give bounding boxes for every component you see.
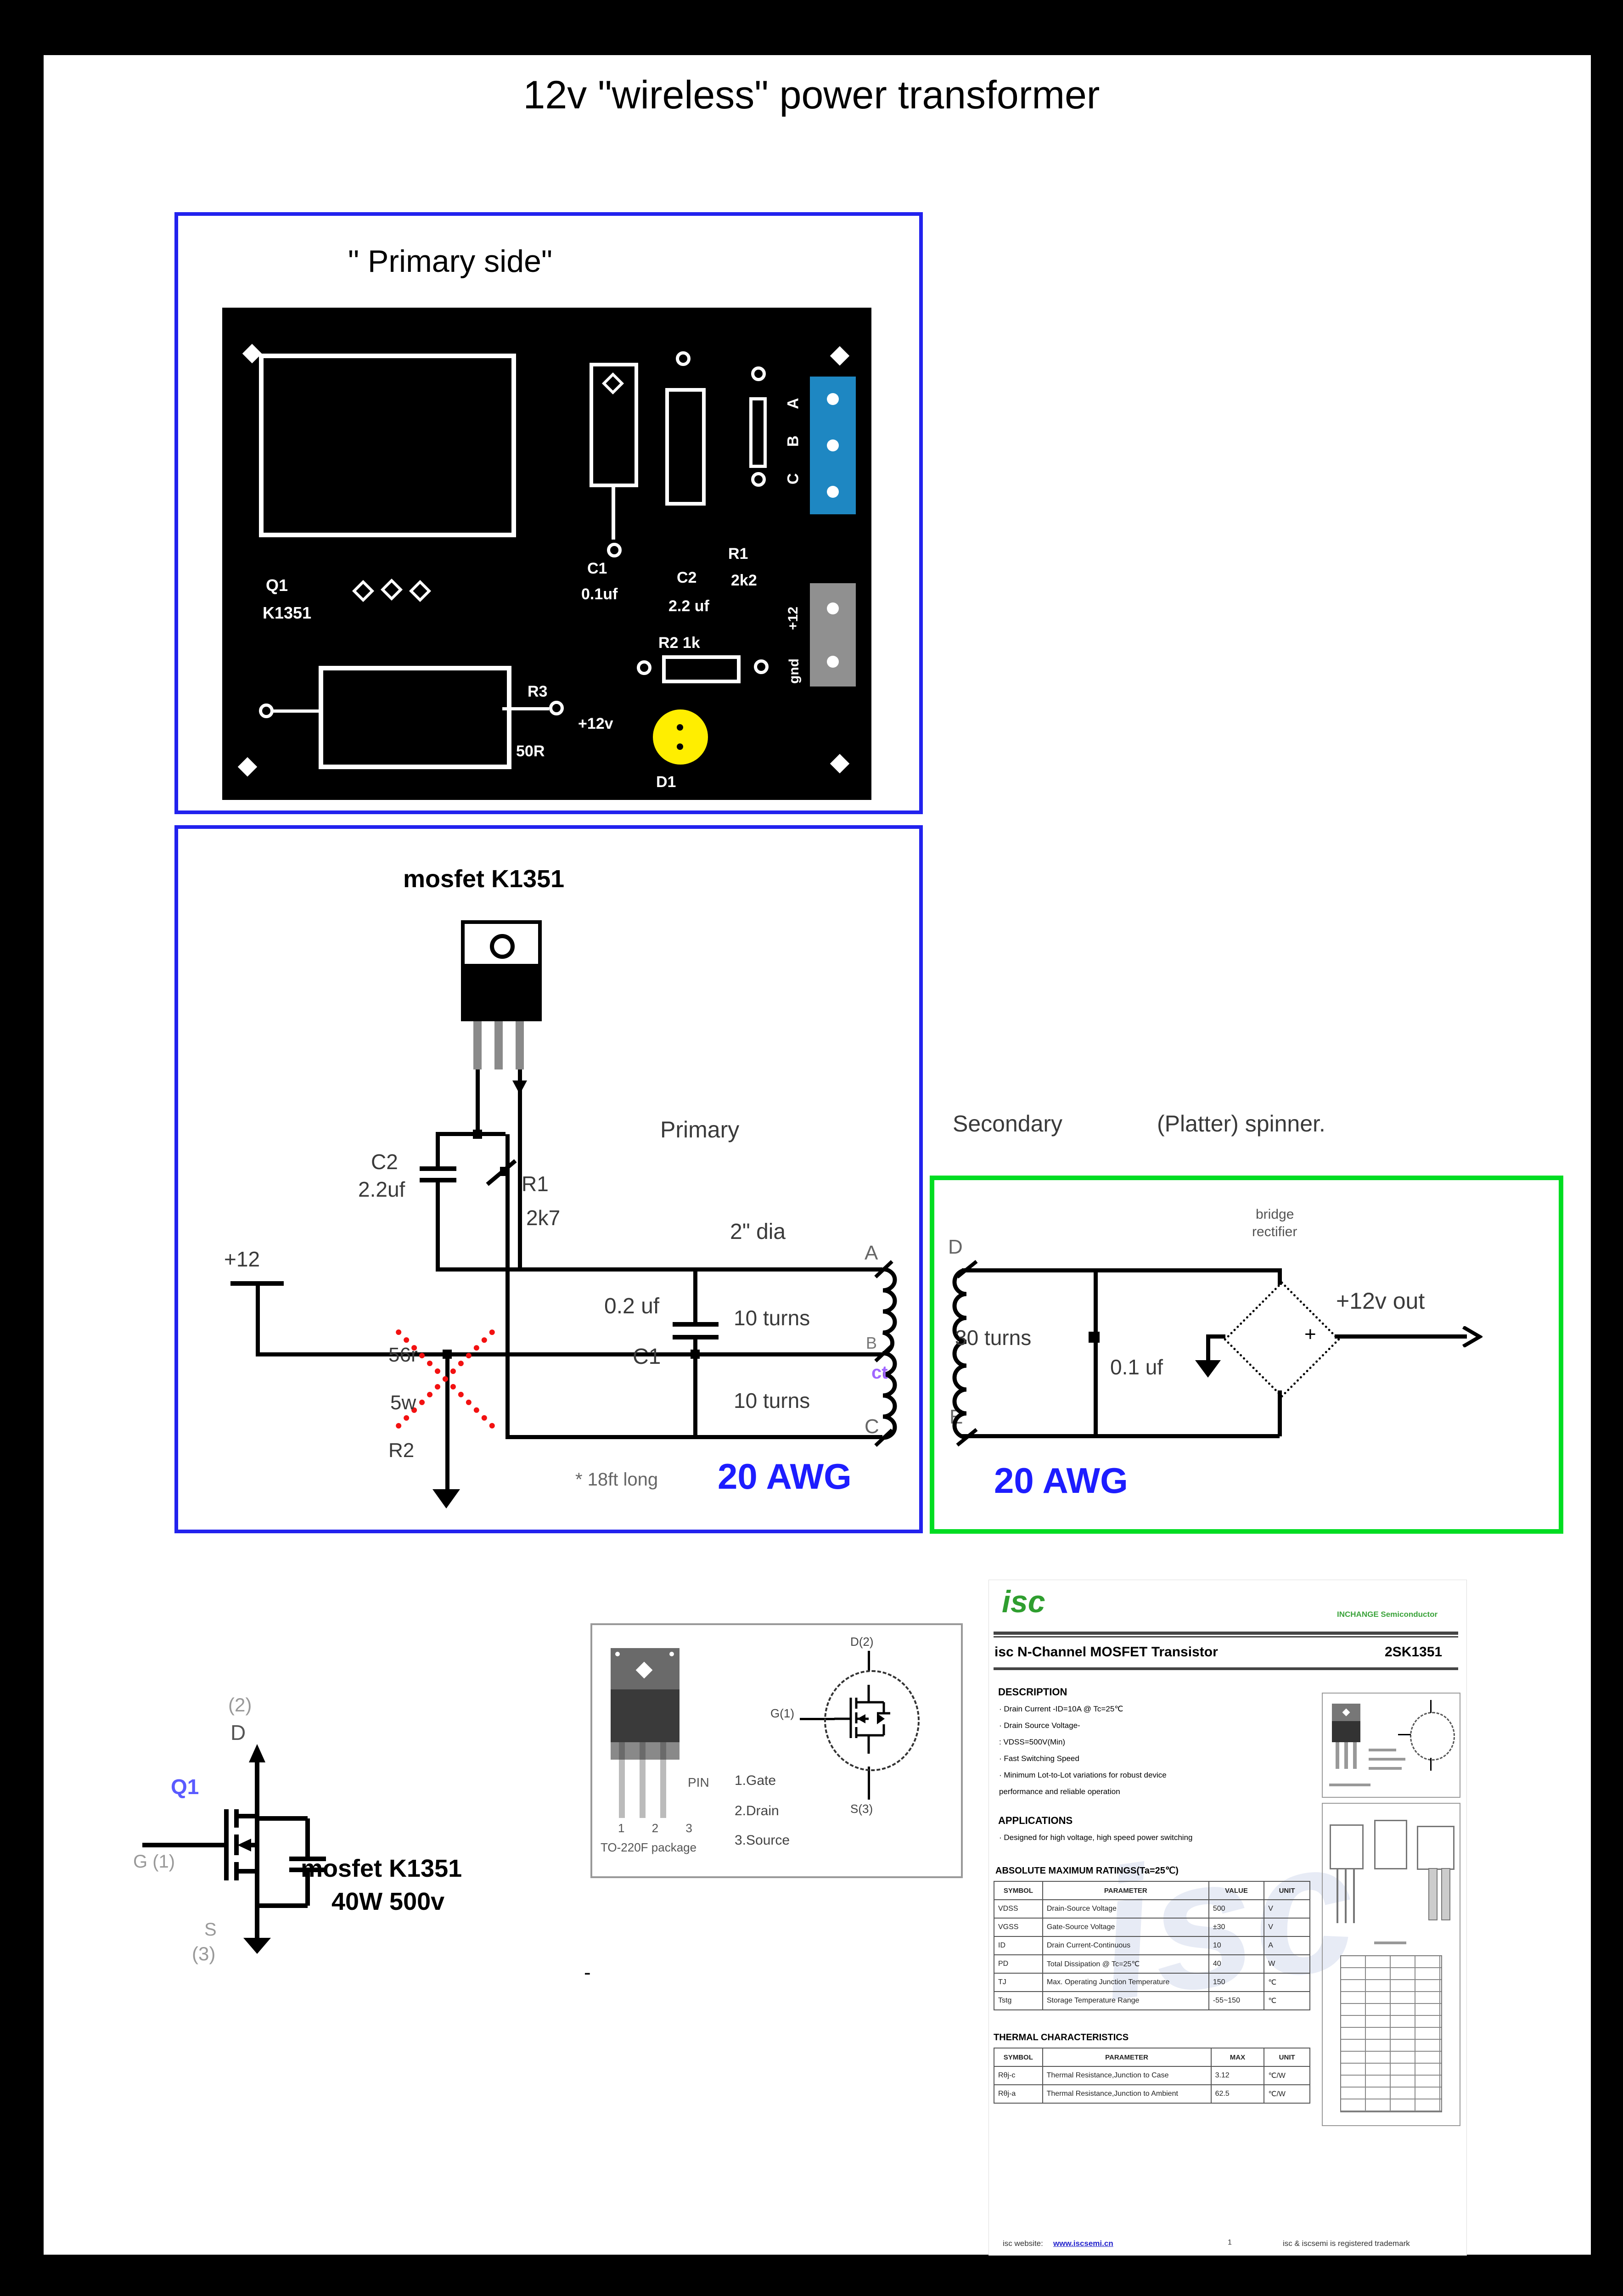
table-row: IDDrain Current-Continuous10A (994, 1936, 1310, 1955)
dimension-table (1340, 1955, 1442, 2112)
table-row: TJMax. Operating Junction Temperature150… (994, 1973, 1310, 1992)
to220-leg (473, 1021, 482, 1069)
wire-gauge-label: 20 AWG (718, 1457, 852, 1497)
pcb-led-icon (653, 709, 708, 765)
c1-value: 0.2 uf (604, 1294, 659, 1319)
secondary-section-label: Secondary (953, 1111, 1062, 1137)
pinout-sym-s: S(3) (850, 1802, 873, 1816)
rule (994, 1632, 1458, 1635)
table-row: VDSSDrain-Source Voltage500V (994, 1900, 1310, 1918)
cell: PD (994, 1955, 1043, 1973)
outline-leg (1428, 1868, 1438, 1920)
thermal-title: THERMAL CHARACTERISTICS (994, 2032, 1129, 2043)
wire (476, 1069, 480, 1134)
coil-diameter-label: 2" dia (730, 1220, 786, 1244)
cell: 10 (1209, 1936, 1264, 1955)
outline-view (1374, 1820, 1407, 1869)
current-arrow-icon (512, 1080, 527, 1094)
pcb-pad-diamond-icon (352, 580, 374, 602)
pcb-pad-icon (637, 660, 651, 675)
wire (962, 1268, 1280, 1272)
secondary-turns-label: 30 turns (955, 1326, 1031, 1350)
mini-lead (1430, 1700, 1432, 1713)
cell: Thermal Resistance,Junction to Case (1043, 2066, 1211, 2085)
mini-lead (1398, 1734, 1411, 1735)
mini-package-body (1332, 1721, 1360, 1742)
primary-side-caption: " Primary side" (348, 244, 552, 279)
pcb-scr-outline (319, 666, 511, 769)
ratings-title: ABSOLUTE MAXIMUM RATINGS(Ta=25℃) (995, 1866, 1179, 1876)
pcb-pad-diamond-icon (409, 580, 431, 602)
cell: ±30 (1209, 1918, 1264, 1936)
cell: 62.5 (1211, 2085, 1264, 2103)
description-item: · Fast Switching Speed (999, 1755, 1079, 1763)
package-figure-box (1322, 1693, 1460, 1798)
platter-spinner-label: (Platter) spinner. (1157, 1111, 1325, 1137)
cell: Storage Temperature Range (1043, 1992, 1209, 2010)
cell: Gate-Source Voltage (1043, 1918, 1209, 1936)
cell: VGSS (994, 1918, 1043, 1936)
pcb-c2-ref: C2 (677, 569, 696, 586)
junction-dot (473, 1130, 482, 1139)
cell: W (1264, 1955, 1310, 1973)
page-title: 12v "wireless" power transformer (0, 73, 1623, 117)
rule (994, 1667, 1458, 1670)
col-header: UNIT (1264, 2048, 1310, 2066)
cell: 150 (1209, 1973, 1264, 1992)
col-header: MAX (1211, 2048, 1264, 2066)
outline-leg (1345, 1868, 1347, 1923)
table-header-row: SYMBOL PARAMETER MAX UNIT (994, 2048, 1310, 2066)
pinout-sym-d: D(2) (850, 1635, 874, 1649)
cap-plate (673, 1335, 719, 1339)
pcb-trace (612, 487, 615, 540)
wire (505, 1134, 510, 1439)
secondary-gauge-label: 20 AWG (994, 1461, 1128, 1501)
ratings-table: SYMBOL PARAMETER VALUE UNIT VDSSDrain-So… (994, 1881, 1310, 2010)
cell: ℃/W (1264, 2085, 1310, 2103)
cap-plate (420, 1166, 456, 1171)
description-item: · Minimum Lot-to-Lot variations for robu… (999, 1771, 1167, 1780)
outline-view (1330, 1824, 1364, 1869)
col-header: SYMBOL (994, 1881, 1043, 1900)
col-header: UNIT (1264, 1881, 1310, 1900)
pinout-package-tab (611, 1648, 680, 1689)
mini-symbol-circle-icon (1410, 1712, 1455, 1761)
outline-leg (1353, 1868, 1355, 1923)
pinout-package-caption: TO-220F package (601, 1841, 696, 1854)
pinout-pin1: 1.Gate (735, 1773, 776, 1788)
pcb-c1-ref: C1 (587, 560, 607, 577)
pcb-r3-ref: R3 (528, 683, 547, 700)
bridge-plus-sign: + (1304, 1323, 1316, 1345)
pcb-pad-icon (549, 701, 564, 715)
pcb-q1-ref: Q1 (266, 576, 288, 595)
pcb-hole-icon (238, 757, 257, 777)
to220-leg (516, 1021, 524, 1069)
datasheet-part-number: 2SK1351 (1385, 1644, 1442, 1660)
mini-hole-icon (1342, 1709, 1350, 1716)
secondary-cap-label: 0.1 uf (1110, 1356, 1163, 1379)
pinout-leg-shade (611, 1742, 680, 1760)
connector-pin (827, 439, 839, 451)
mini-leg (1353, 1742, 1357, 1769)
primary-side-box: " Primary side" Q1 K1351 C1 0.1uf C2 2.2… (174, 212, 923, 814)
to220-leg (494, 1021, 503, 1069)
secondary-coil-icon (939, 1265, 980, 1444)
table-row: PDTotal Dissipation @ Tc=25℃40W (994, 1955, 1310, 1973)
pcb-conn-label-a: A (785, 398, 802, 409)
col-header: PARAMETER (1043, 1881, 1209, 1900)
ground-icon (432, 1489, 460, 1508)
bridge-label-line1: bridge (1256, 1207, 1294, 1222)
mini-leg (1336, 1742, 1339, 1769)
pcb-q1-part: K1351 (263, 604, 311, 622)
pcb-led-pad (677, 743, 683, 750)
footer-page-number: 1 (1228, 2239, 1232, 2247)
scanned-page: { "page": { "title": "12v \"wireless\" p… (0, 0, 1623, 2296)
outline-view (1417, 1826, 1455, 1870)
wire (436, 1182, 440, 1271)
pcb-resistor-outline (662, 655, 741, 683)
description-item: performance and reliable operation (999, 1788, 1120, 1796)
pcb-c1-value: 0.1uf (581, 586, 618, 603)
pcb-r2-label: R2 1k (658, 635, 700, 652)
junction-dot (1089, 1332, 1100, 1343)
table-header-row: SYMBOL PARAMETER VALUE UNIT (994, 1881, 1310, 1900)
pinout-pin3: 3.Source (735, 1833, 790, 1848)
pinout-sym-g: G(1) (770, 1707, 794, 1720)
footer-right: isc & iscsemi is registered trademark (1283, 2240, 1410, 2248)
cap-plate (420, 1178, 456, 1182)
connector-pin (827, 486, 839, 498)
cell: Drain-Source Voltage (1043, 1900, 1209, 1918)
pcb-trace (502, 707, 549, 710)
symbol-mosfet-glyph (834, 1685, 894, 1754)
pcb-conn-label-12v: +12 (786, 607, 801, 630)
cell: V (1264, 1900, 1310, 1918)
wire-rail-a (436, 1267, 882, 1272)
cell: ℃/W (1264, 2066, 1310, 2085)
connector-pin (827, 393, 839, 405)
isc-logo: isc (1002, 1585, 1045, 1619)
cell: Drain Current-Continuous (1043, 1936, 1209, 1955)
mini-package-tab (1332, 1704, 1360, 1721)
pcb-pad-icon (751, 366, 766, 381)
wire (256, 1281, 260, 1355)
ground-icon (1195, 1360, 1221, 1378)
pcb-conn-label-c: C (785, 473, 802, 484)
schematic-title: mosfet K1351 (403, 866, 564, 893)
mini-leg (1344, 1742, 1348, 1769)
pcb-pad-diamond-icon (381, 579, 403, 601)
pcb-supply-label: +12v (578, 715, 613, 732)
pinout-box: 1 2 3 TO-220F package PIN 1.Gate 2.Drain… (590, 1623, 963, 1878)
blur-text (1374, 1941, 1406, 1944)
applications-item: · Designed for high voltage, high speed … (999, 1834, 1192, 1842)
wire-rail-b (256, 1352, 882, 1356)
pcb-trace (273, 709, 319, 713)
cell: -55~150 (1209, 1992, 1264, 2010)
cell: ℃ (1264, 1973, 1310, 1992)
r2-value: 56r (388, 1344, 418, 1366)
pcb-resistor-outline (749, 397, 767, 468)
tab-hole-icon (636, 1662, 653, 1679)
cell: ℃ (1264, 1992, 1310, 2010)
stray-dash: - (584, 1962, 591, 1984)
cell: Total Dissipation @ Tc=25℃ (1043, 1955, 1209, 1973)
primary-section-label: Primary (660, 1117, 739, 1142)
pcb-transformer-outline (259, 354, 516, 537)
cell: 500 (1209, 1900, 1264, 1918)
datasheet-page: isc INCHANGE Semiconductor isc N-Channel… (988, 1580, 1467, 2256)
primary-schematic-box: mosfet K1351 +12 C2 2.2uf R (174, 825, 923, 1533)
supply-label: +12 (224, 1248, 260, 1271)
blur-text (1369, 1767, 1402, 1770)
isc-brand: INCHANGE Semiconductor (1337, 1610, 1438, 1619)
footer-left: isc website: (1003, 2240, 1043, 2248)
r2-power: 5w (390, 1392, 416, 1414)
blur-text (1329, 1784, 1370, 1786)
tab-dot (669, 1652, 674, 1656)
footer-website-link[interactable]: www.iscsemi.cn (1053, 2240, 1113, 2248)
mosfet-rating-label: 40W 500v (331, 1888, 444, 1915)
junction-dot (691, 1350, 700, 1359)
col-header: PARAMETER (1043, 2048, 1211, 2066)
pcb-conn-label-b: B (785, 435, 802, 447)
connector-pin (827, 656, 839, 668)
connector-pin (827, 602, 839, 614)
c1-ref: C1 (633, 1345, 661, 1369)
wire (1094, 1268, 1098, 1438)
pinout-package-body (611, 1689, 680, 1742)
pcb-photo: Q1 K1351 C1 0.1uf C2 2.2 uf R1 2k2 R2 1k… (222, 308, 871, 800)
cell: V (1264, 1918, 1310, 1936)
secondary-box: D E 30 turns 0.1 uf bridge rectifier + +… (930, 1176, 1563, 1534)
pinout-leg-numbers: 1 2 3 (618, 1822, 704, 1835)
c2-value: 2.2uf (358, 1178, 405, 1201)
cell: Rθj-a (994, 2085, 1043, 2103)
wire (962, 1434, 1280, 1438)
col-header: VALUE (1209, 1881, 1264, 1900)
wire (436, 1134, 440, 1166)
table-row: VGSSGate-Source Voltage±30V (994, 1918, 1310, 1936)
pcb-component-outline (665, 388, 706, 506)
pcb-connector-abc (810, 377, 856, 514)
mosfet-pin2-label: (2) (228, 1694, 252, 1716)
pcb-hole-icon (830, 754, 849, 773)
output-arrow-icon (1462, 1326, 1483, 1347)
pcb-conn-label-gnd: gnd (786, 658, 802, 684)
bridge-rectifier-icon (1224, 1281, 1341, 1398)
cell: Max. Operating Junction Temperature (1043, 1973, 1209, 1992)
pcb-r1-value: 2k2 (731, 572, 757, 589)
r2-ref: R2 (388, 1440, 414, 1462)
cell: VDSS (994, 1900, 1043, 1918)
pcb-d1-label: D1 (656, 774, 676, 791)
pcb-hole-icon (830, 346, 849, 366)
bridge-label-line2: rectifier (1252, 1224, 1297, 1239)
terminal-c: C (865, 1416, 879, 1438)
outline-leg (1337, 1868, 1338, 1923)
symbol-lead (868, 1767, 870, 1800)
description-item: · Drain Source Voltage- (999, 1722, 1080, 1730)
pcb-hole-icon (602, 372, 624, 394)
table-row: Rθj-aThermal Resistance,Junction to Ambi… (994, 2085, 1310, 2103)
cell: Rθj-c (994, 2066, 1043, 2085)
to220-body-icon (461, 964, 542, 1021)
pinout-pin2: 2.Drain (735, 1803, 779, 1818)
package-dimensions-box (1322, 1803, 1460, 2126)
pcb-c2-value: 2.2 uf (668, 598, 709, 615)
thermal-table: SYMBOL PARAMETER MAX UNIT Rθj-cThermal R… (994, 2048, 1310, 2104)
cell: Tstg (994, 1992, 1043, 2010)
symbol-lead (868, 1651, 870, 1671)
pinout-pin-header: PIN (688, 1776, 709, 1790)
blur-text (1369, 1749, 1396, 1751)
pcb-pad-icon (751, 472, 766, 487)
mosfet-name-label: mosfet K1351 (301, 1855, 462, 1882)
pcb-pad-icon (259, 703, 274, 718)
pcb-r3-value: 50R (516, 743, 545, 760)
output-label: +12v out (1336, 1289, 1425, 1314)
junction-dot (443, 1350, 452, 1359)
pcb-pad-icon (607, 543, 622, 557)
table-row: TstgStorage Temperature Range-55~150℃ (994, 1992, 1310, 2010)
turns-bottom-label: 10 turns (734, 1389, 810, 1412)
c2-ref: C2 (371, 1150, 398, 1174)
junction-dot (500, 1167, 509, 1176)
wire (1278, 1390, 1282, 1436)
cell: 3.12 (1211, 2066, 1264, 2085)
r1-value: 2k7 (526, 1206, 560, 1230)
turns-top-label: 10 turns (734, 1306, 810, 1330)
cell: A (1264, 1936, 1310, 1955)
blur-text (1369, 1758, 1405, 1761)
pcb-pad-icon (676, 351, 691, 366)
table-row: Rθj-cThermal Resistance,Junction to Case… (994, 2066, 1310, 2085)
primary-coil-icon (878, 1264, 924, 1443)
wire (1206, 1334, 1210, 1361)
wire-length-note: * 18ft long (575, 1469, 658, 1490)
terminal-d: D (948, 1236, 963, 1258)
datasheet-product-line: isc N-Channel MOSFET Transistor (994, 1644, 1218, 1660)
cap-plate (673, 1322, 719, 1327)
mini-lead (1430, 1758, 1432, 1771)
pcb-pad-icon (754, 659, 769, 674)
to220-hole-icon (490, 934, 515, 959)
pcb-r1-ref: R1 (728, 546, 748, 563)
tab-dot (615, 1652, 620, 1656)
pcb-component-outline (590, 363, 638, 487)
description-title: DESCRIPTION (998, 1687, 1067, 1698)
outline-leg (1441, 1868, 1450, 1920)
wire (1335, 1334, 1467, 1339)
cell: ID (994, 1936, 1043, 1955)
cell: Thermal Resistance,Junction to Ambient (1043, 2085, 1211, 2103)
description-item: : VDSS=500V(Min) (999, 1738, 1065, 1747)
pcb-led-pad (677, 724, 683, 731)
col-header: SYMBOL (994, 2048, 1043, 2066)
cell: 40 (1209, 1955, 1264, 1973)
terminal-b: B (866, 1334, 877, 1352)
wire (518, 1069, 522, 1271)
description-item: · Drain Current -ID=10A @ Tc=25℃ (999, 1705, 1123, 1714)
center-tap-label: ct (871, 1362, 888, 1383)
cell: TJ (994, 1973, 1043, 1992)
r1-ref: R1 (522, 1172, 549, 1196)
terminal-a: A (865, 1242, 878, 1264)
rule (994, 1636, 1458, 1638)
wire (693, 1267, 697, 1322)
wire (436, 1132, 505, 1136)
pcb-connector-power (810, 583, 856, 687)
applications-title: APPLICATIONS (998, 1815, 1073, 1826)
